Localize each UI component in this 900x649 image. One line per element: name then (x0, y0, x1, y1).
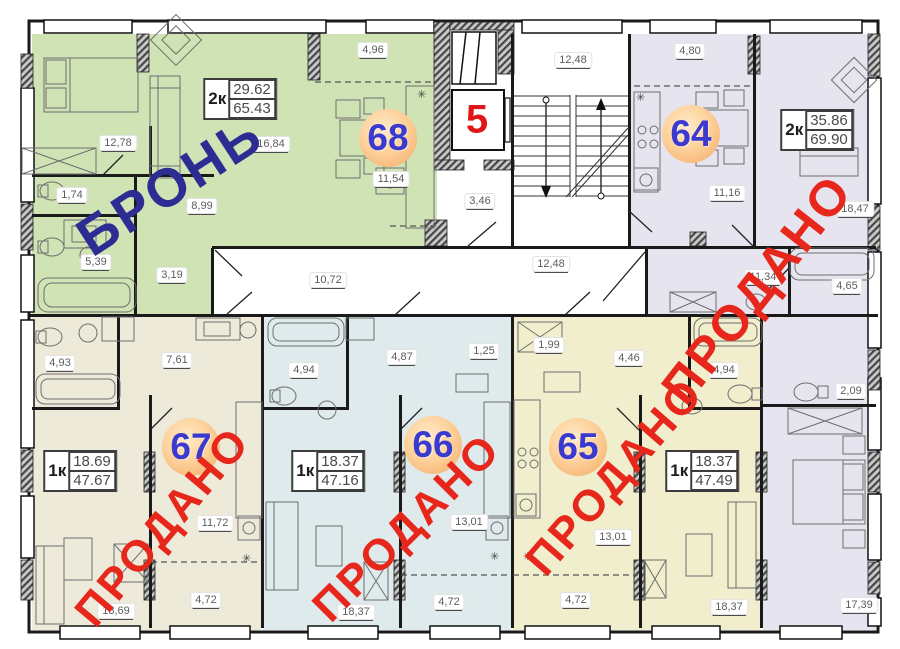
area-measurement: 18,37 (710, 599, 748, 615)
area-measurement: 7,61 (161, 352, 192, 368)
area-measurement: 17,39 (840, 597, 878, 613)
apartment-areas: 18.3747.49 (691, 452, 737, 490)
apartment-type-label: 2к (782, 111, 806, 149)
area-measurement: 4,72 (190, 592, 221, 608)
area-measurement: 1,25 (468, 343, 499, 359)
living-area-value: 18.37 (690, 451, 738, 472)
total-area-value: 69.90 (805, 129, 853, 150)
stairs (514, 95, 628, 199)
floor-plan-canvas: ✳✳✳ ✳✳ 5 12,483,4610,7212,4812,7816,844,… (0, 0, 900, 649)
total-area-value: 47.67 (68, 470, 116, 491)
area-measurement: 4,72 (433, 594, 464, 610)
area-measurement: 4,87 (386, 349, 417, 365)
area-measurement: 4,65 (831, 278, 862, 294)
area-measurement: 11,16 (709, 185, 746, 201)
area-measurement: 4,72 (560, 592, 591, 608)
apartment-type-label: 1к (45, 452, 69, 490)
apartment-spec-box: 1к18.3747.49 (665, 450, 739, 492)
living-area-value: 29.62 (228, 79, 276, 100)
apartment-spec-box: 1к18.6947.67 (43, 450, 117, 492)
area-measurement: 3,19 (156, 267, 187, 283)
area-measurement: 2,09 (835, 383, 866, 399)
apartment-spec-box: 1к18.3747.16 (291, 450, 365, 492)
area-measurement: 11,54 (373, 171, 410, 187)
total-area-value: 47.16 (316, 470, 364, 491)
apartment-64-region[interactable] (763, 316, 876, 630)
apartment-spec-box: 2к35.8669.90 (780, 109, 854, 151)
area-measurement: 4,46 (613, 350, 644, 366)
area-measurement: 4,80 (674, 43, 705, 59)
apartment-number-badge[interactable]: 68 (359, 109, 417, 167)
area-measurement: 13,01 (450, 514, 488, 530)
living-area-value: 18.37 (316, 451, 364, 472)
area-measurement: 4,93 (44, 355, 75, 371)
apartment-number-badge[interactable]: 64 (662, 105, 720, 163)
area-measurement: 12,48 (532, 256, 570, 272)
area-measurement: 10,72 (309, 272, 347, 288)
apartment-areas: 18.6947.67 (69, 452, 115, 490)
area-measurement: 1,74 (56, 187, 87, 203)
area-measurement: 4,96 (357, 42, 388, 58)
area-measurement: 1,99 (533, 337, 564, 353)
apartment-areas: 35.8669.90 (806, 111, 852, 149)
apartment-areas: 18.3747.16 (317, 452, 363, 490)
total-area-value: 47.49 (690, 470, 738, 491)
area-measurement: 3,46 (464, 193, 495, 209)
area-measurement: 4,94 (288, 362, 319, 378)
elevator-floor-number: 5 (466, 98, 488, 143)
apartment-type-label: 1к (293, 452, 317, 490)
area-measurement: 12,48 (554, 52, 592, 68)
apartment-type-label: 1к (667, 452, 691, 490)
area-measurement: 12,78 (99, 135, 137, 151)
living-area-value: 18.69 (68, 451, 116, 472)
living-area-value: 35.86 (805, 110, 853, 131)
